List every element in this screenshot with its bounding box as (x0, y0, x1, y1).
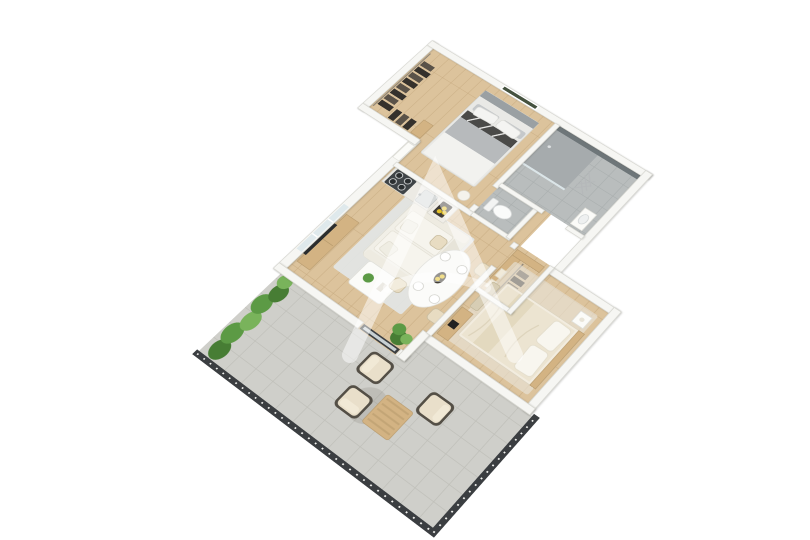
floor-plan-render: A (0, 0, 810, 540)
floor-plan-svg (94, 2, 810, 540)
floor-plan-3d-stage (94, 2, 810, 540)
